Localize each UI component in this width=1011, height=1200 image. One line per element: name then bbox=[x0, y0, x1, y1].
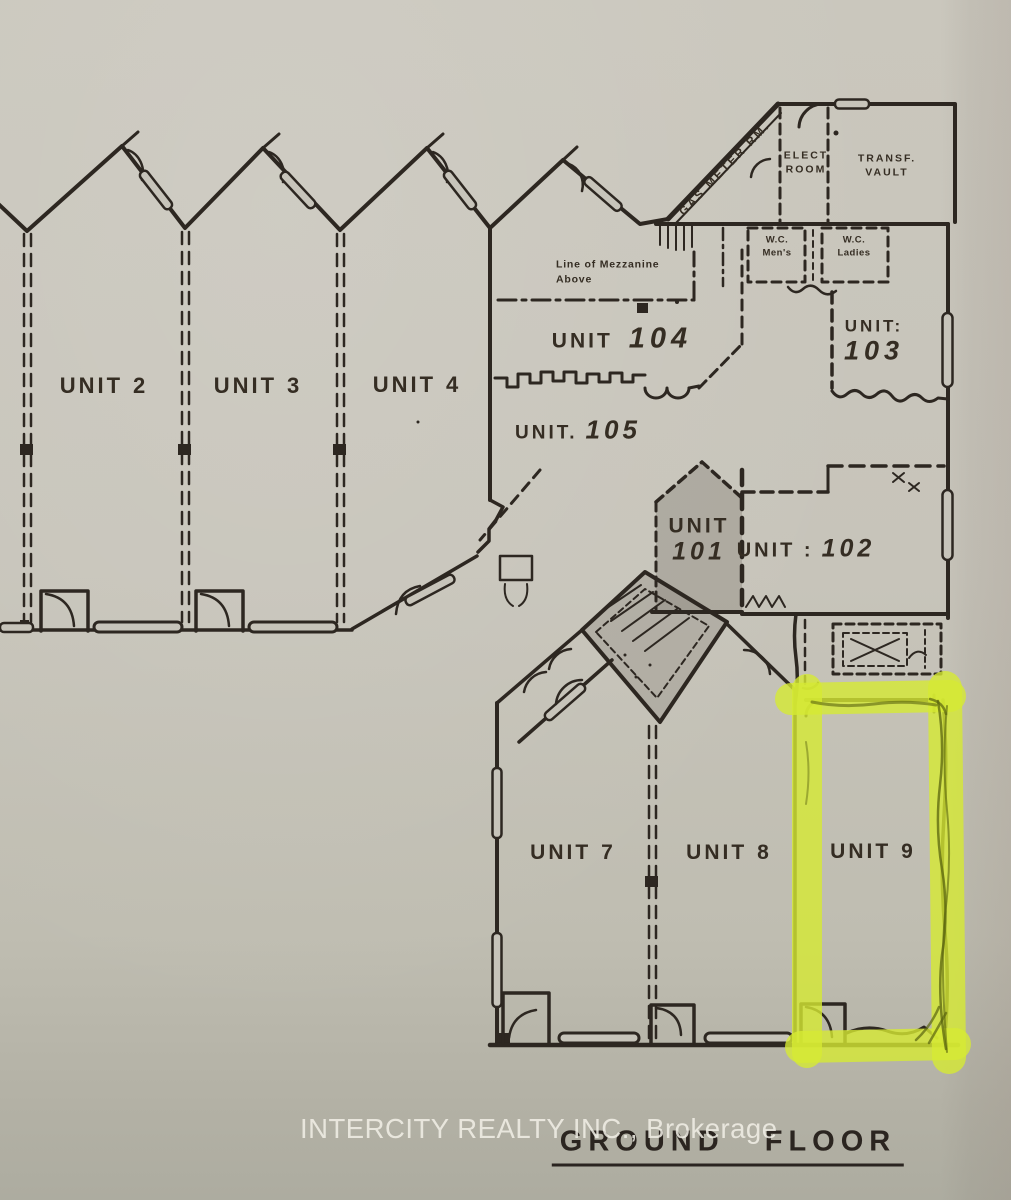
unit-101-prefix: UNIT bbox=[669, 515, 730, 537]
unit-8-prefix: UNIT bbox=[686, 841, 747, 865]
unit-4-prefix: UNIT bbox=[373, 372, 436, 398]
unit-102-prefix: UNIT : bbox=[737, 540, 814, 563]
walls-unit-separators bbox=[24, 232, 344, 622]
unit-105-number: 105 bbox=[586, 415, 641, 446]
elect-room-label: ELECT ROOM bbox=[784, 149, 828, 176]
transf-vault-line2: VAULT bbox=[865, 167, 908, 180]
walls-storefront-bottom-left bbox=[0, 556, 477, 632]
wc-mens-line1: W.C. bbox=[766, 235, 789, 247]
unit-101-number: 101 bbox=[672, 538, 726, 564]
elect-room-line1: ELECT bbox=[784, 149, 828, 162]
unit-104-prefix: UNIT bbox=[552, 330, 613, 354]
elect-room-line2: ROOM bbox=[786, 164, 827, 177]
unit-104-number: 104 bbox=[629, 323, 692, 356]
unit-103-number: 103 bbox=[844, 336, 904, 364]
unit-2-number: 2 bbox=[133, 373, 148, 399]
unit-9-label: UNIT 9 bbox=[830, 840, 916, 864]
unit-8-label: UNIT 8 bbox=[686, 841, 772, 865]
unit-2-prefix: UNIT bbox=[60, 373, 123, 399]
floorplan-scan: UNIT 2 UNIT 3 UNIT 4 UNIT 104 UNIT. 105 … bbox=[0, 0, 1011, 1200]
unit-7-prefix: UNIT bbox=[530, 841, 591, 865]
wc-mens-line2: Men's bbox=[762, 248, 791, 260]
unit-3-number: 3 bbox=[287, 373, 302, 399]
unit-2-label: UNIT 2 bbox=[60, 373, 149, 399]
unit-9-prefix: UNIT bbox=[830, 840, 891, 864]
unit-7-number: 7 bbox=[601, 841, 616, 865]
unit-4-label: UNIT 4 bbox=[373, 372, 462, 398]
wc-ladies-label: W.C. Ladies bbox=[837, 235, 870, 260]
brokerage-watermark: INTERCITY REALTY INC., Brokerage bbox=[300, 1113, 778, 1145]
unit-103-label: UNIT: 103 bbox=[844, 317, 904, 364]
wc-ladies-line1: W.C. bbox=[843, 235, 866, 247]
transf-vault-label: TRANSF. VAULT bbox=[858, 152, 916, 179]
unit-102-label: UNIT : 102 bbox=[737, 535, 876, 564]
unit-3-label: UNIT 3 bbox=[214, 373, 303, 399]
mezzanine-note: Line of Mezzanine Above bbox=[556, 257, 659, 286]
floorplan-drawing bbox=[0, 0, 1011, 1200]
mezzanine-note-line2: Above bbox=[556, 273, 592, 287]
pen-scribbles-unit9 bbox=[806, 699, 949, 1052]
walls-unit9 bbox=[801, 695, 947, 1044]
unit-101-label: UNIT 101 bbox=[669, 515, 730, 564]
unit-8-number: 8 bbox=[757, 841, 772, 865]
wc-ladies-line2: Ladies bbox=[837, 248, 870, 260]
walls-units-789 bbox=[490, 614, 958, 1045]
shaded-areas bbox=[582, 462, 742, 722]
hatched-box bbox=[833, 624, 941, 674]
wc-mens-label: W.C. Men's bbox=[762, 235, 791, 260]
unit-104-label: UNIT 104 bbox=[552, 323, 692, 356]
unit-105-prefix: UNIT. bbox=[515, 423, 578, 445]
unit-3-prefix: UNIT bbox=[214, 373, 277, 399]
unit-7-label: UNIT 7 bbox=[530, 841, 616, 865]
mezzanine-note-line1: Line of Mezzanine bbox=[556, 257, 659, 271]
unit-105-label: UNIT. 105 bbox=[515, 415, 641, 446]
unit-103-prefix: UNIT: bbox=[845, 317, 903, 335]
highlight-marker-unit9 bbox=[791, 688, 955, 1057]
unit-102-number: 102 bbox=[822, 535, 876, 564]
transf-vault-line1: TRANSF. bbox=[858, 152, 916, 165]
unit-9-number: 9 bbox=[901, 840, 916, 864]
unit-4-number: 4 bbox=[446, 372, 461, 398]
